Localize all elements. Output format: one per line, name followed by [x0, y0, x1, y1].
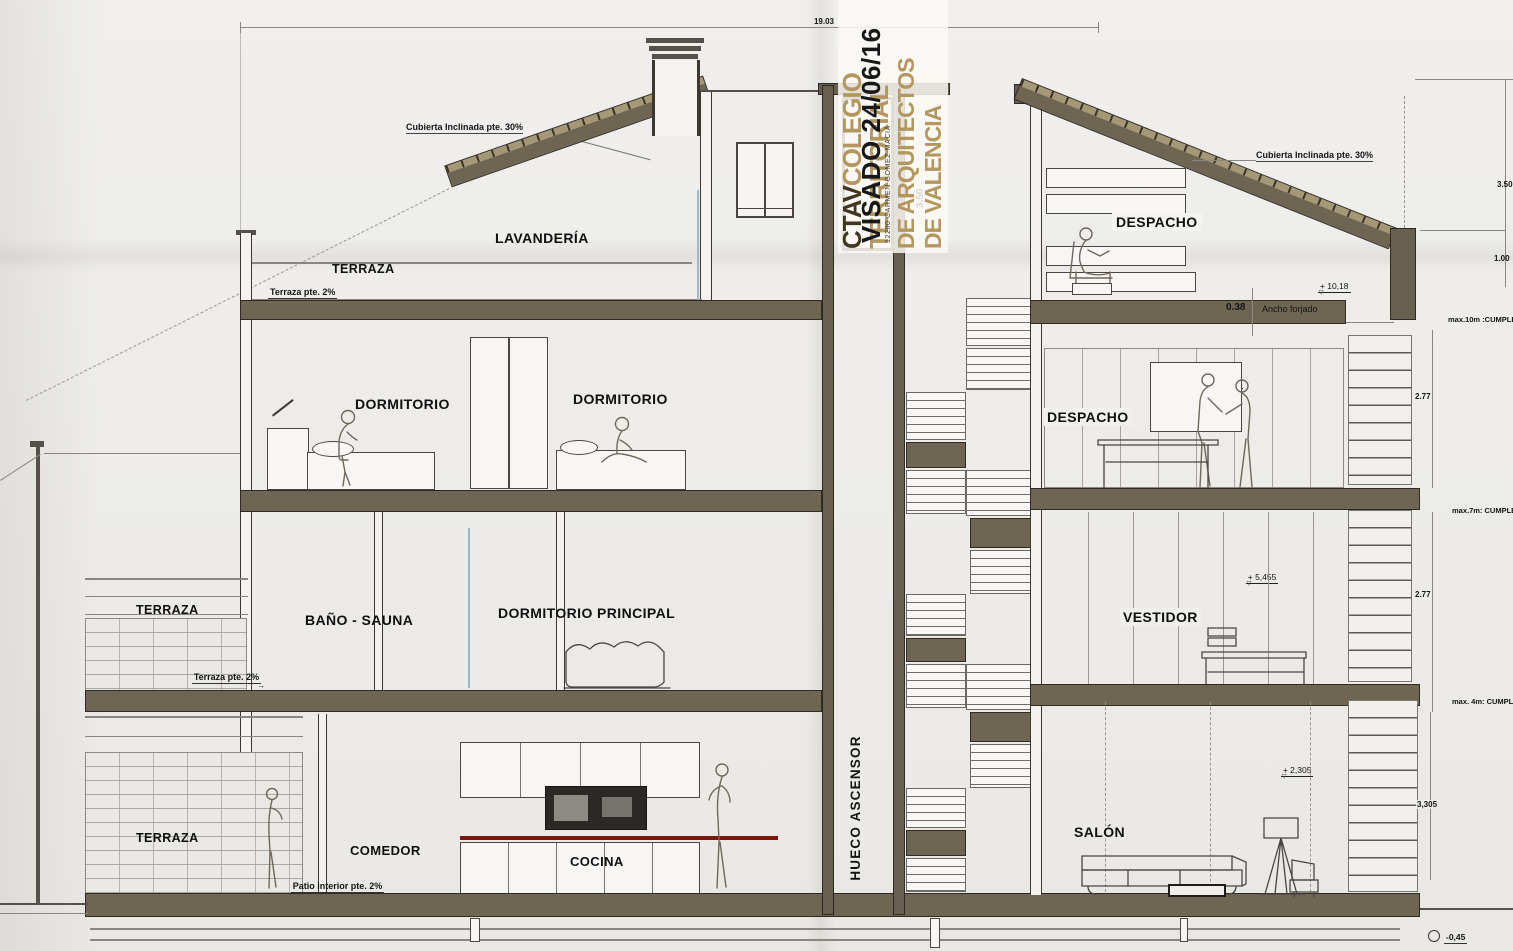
- wardrobe: [470, 337, 548, 489]
- right-attic-wall: [1390, 228, 1416, 320]
- forjado-dim-value: 0.38: [1226, 302, 1245, 313]
- tower-wall: [700, 92, 712, 302]
- room-label-comedor: COMEDOR: [350, 843, 421, 858]
- forjado-dim-label: Ancho forjado: [1262, 304, 1318, 314]
- facade-louver-f2: [1348, 335, 1412, 485]
- room-label-terraza-0: TERRAZA: [136, 831, 199, 845]
- floor2-slab-left: [240, 490, 822, 512]
- salon-sofa: [1078, 854, 1256, 898]
- margin-level-665-line2: max.7m: CUMPLE): [1452, 506, 1513, 515]
- terrace1-rail-2: [85, 596, 248, 597]
- forjado-dim-line: [1252, 288, 1253, 336]
- dining-wall-left: [318, 714, 327, 896]
- terrace1-slope-note: Terraza pte. 2%→: [192, 672, 261, 684]
- margin-level-m045: -0,45: [1444, 932, 1467, 944]
- pipe-riser-3: [1180, 918, 1188, 942]
- room-label-cocina: COCINA: [570, 854, 624, 869]
- margin-dim-eave: 1.00: [1494, 254, 1510, 263]
- stair-landing-slab: [906, 442, 966, 468]
- room-label-despacho-2: DESPACHO: [1044, 408, 1132, 426]
- room-label-bano-sauna: BAÑO - SAUNA: [305, 612, 413, 628]
- kitchen-oven: [554, 795, 588, 821]
- right-roof-leader: [1192, 160, 1256, 161]
- room-label-salon: SALÓN: [1074, 824, 1125, 840]
- floor1-slab-left: [85, 690, 822, 712]
- stair-flight: [906, 788, 966, 828]
- room-label-terraza-1: TERRAZA: [136, 603, 199, 617]
- stair-level-2305: ▽+ 2,305: [1281, 765, 1314, 777]
- attic-floor-slab-left: [240, 300, 822, 320]
- stair-landing-slab: [970, 518, 1034, 548]
- chimney-cap-1: [646, 38, 704, 43]
- desk-monitor: [272, 399, 294, 417]
- shaft-label: HUECO ASCENSOR: [848, 728, 870, 888]
- pipe-line-1: [90, 928, 1400, 930]
- margin-vline-f3: [1432, 330, 1433, 488]
- margin-hline-1368: [1415, 79, 1513, 80]
- chimney-cap-2: [649, 46, 701, 51]
- chimney-cap-3: [652, 54, 698, 59]
- tower-window: [736, 142, 794, 218]
- stair-flight: [970, 550, 1034, 594]
- room-label-dormitorio-b: DORMITORIO: [573, 391, 668, 407]
- attic-slab-edge-line: [1346, 322, 1394, 323]
- stamp-architect-line: 12200 CARMEN GÓMEZ MACIÁ: [885, 10, 892, 243]
- level-marker-icon: ▽: [1319, 290, 1324, 296]
- room-label-dormitorio-principal: DORMITORIO PRINCIPAL: [498, 605, 675, 621]
- patio-parapet-line-1: [85, 716, 303, 718]
- top-dim-tick-right: [1098, 22, 1099, 33]
- tower-window-mullion: [764, 144, 766, 216]
- top-dim-line: [240, 27, 1098, 28]
- salon-coffee-table: [1168, 884, 1226, 897]
- stair-flight: [966, 348, 1036, 390]
- tower-top-line: [700, 90, 824, 92]
- desk: [267, 428, 309, 490]
- section-drawing-sheet: 19.03 Cubierta Inclinada pte. 30% LAVAND…: [0, 0, 1513, 951]
- room-label-terraza-attic: TERRAZA: [332, 262, 395, 276]
- stair-flight: [970, 744, 1034, 788]
- master-bed: [560, 638, 674, 692]
- margin-vline-f2: [1432, 512, 1433, 712]
- stair-flight: [906, 664, 966, 708]
- margin-dim-f2: 2.77: [1414, 590, 1432, 599]
- stamp-visado-line: VISADO 24/06/16: [858, 10, 884, 243]
- stair-landing-slab: [906, 830, 966, 856]
- margin-vline-f1: [1430, 712, 1431, 880]
- stair-landing-slab: [970, 712, 1034, 742]
- patio-slope-note: Patio interior pte. 2%→: [291, 881, 385, 893]
- scan-fold-band: [0, 238, 1513, 272]
- margin-hline-1118: [1420, 230, 1506, 231]
- facade-louver-f1: [1348, 510, 1412, 682]
- stamp-org-word4: DE VALENCIA: [920, 4, 947, 249]
- attic-glass-line: [697, 190, 699, 300]
- right-roof-note: Cubierta Inclinada pte. 30%: [1256, 150, 1373, 162]
- facade-louver-f0: [1348, 700, 1418, 892]
- stair-flight: [906, 858, 966, 892]
- drain-circle-icon: [1428, 930, 1440, 942]
- figure-person-standing-dining: [256, 786, 288, 890]
- stamp-visado-block: VISADO 24/06/16 12200 CARMEN GÓMEZ MACIÁ: [858, 10, 914, 243]
- attic-shelf: [1046, 194, 1186, 214]
- neighbour-wire: [44, 453, 240, 454]
- neighbour-mast: [36, 446, 40, 904]
- margin-dim-f1: 3,305: [1416, 800, 1438, 809]
- despacho2-table: [1096, 436, 1220, 490]
- pipe-line-2: [90, 939, 1400, 941]
- chimney-body: [652, 60, 700, 136]
- left-sight-dashed-line: [26, 188, 449, 401]
- pipe-riser-1: [470, 918, 480, 942]
- stair-flight: [906, 392, 966, 440]
- neighbour-mast-cap: [30, 441, 44, 447]
- margin-level-350-line2: max. 4m: CUMPLE): [1452, 697, 1513, 706]
- room-label-vestidor: VESTIDOR: [1120, 608, 1201, 626]
- figure-person-sitting-bed-a: [326, 408, 366, 490]
- level-marker-icon: ▽: [1282, 774, 1287, 780]
- right-dashed-extension: [1404, 96, 1405, 228]
- figure-person-sitting-bed-b: [592, 414, 654, 484]
- room-label-lavanderia: LAVANDERÍA: [495, 230, 589, 246]
- margin-dim-f3: 2.77: [1414, 392, 1432, 401]
- room-label-dormitorio-a: DORMITORIO: [355, 396, 450, 412]
- bath-wall-left: [374, 512, 383, 690]
- attic-shelf: [1046, 168, 1186, 188]
- kitchen-microwave: [602, 797, 632, 817]
- figure-person-standing-kitchen: [702, 760, 740, 892]
- wardrobe-divider: [508, 338, 510, 488]
- stair-flight: [966, 298, 1036, 346]
- stair-flight: [906, 470, 966, 514]
- neighbour-guy-line: [0, 454, 41, 481]
- vestidor-bench: [1200, 626, 1312, 686]
- top-dim-extension: [240, 28, 241, 230]
- pipe-riser-2: [930, 918, 940, 948]
- patio-parapet-line-2: [85, 736, 303, 737]
- margin-dim-roof: 3.50: [1496, 180, 1513, 189]
- left-ground-line-2: [0, 913, 88, 914]
- kitchen-appliance-band: [545, 786, 647, 830]
- stair-landing-slab: [906, 638, 966, 662]
- shaft-wall-left: [822, 85, 834, 915]
- floor2-slab-right: [1030, 488, 1420, 510]
- salon-armchair: [1288, 858, 1324, 898]
- stair-flight: [966, 664, 1036, 710]
- stair-flight: [966, 470, 1036, 516]
- top-width-dim: 19.03: [800, 17, 834, 26]
- right-ground-line: [1420, 908, 1513, 910]
- terrace1-rail-1: [85, 578, 248, 580]
- attic-terrace-slope-note: Terraza pte. 2%→: [268, 287, 337, 299]
- attic-level-left: ▽+ 10,18: [1318, 281, 1351, 293]
- stair-flight: [906, 594, 966, 636]
- margin-level-980-line2: max.10m :CUMPLE): [1448, 315, 1513, 324]
- attic-stool: [1072, 283, 1112, 295]
- slope-arrow-icon: →: [257, 683, 265, 689]
- bath-glass-line: [468, 528, 470, 688]
- left-ground-line-1: [0, 903, 88, 905]
- attic-terrace-rail: [252, 262, 692, 264]
- tower-window-sill: [738, 208, 792, 209]
- left-roof-note: Cubierta Inclinada pte. 30%: [406, 122, 523, 134]
